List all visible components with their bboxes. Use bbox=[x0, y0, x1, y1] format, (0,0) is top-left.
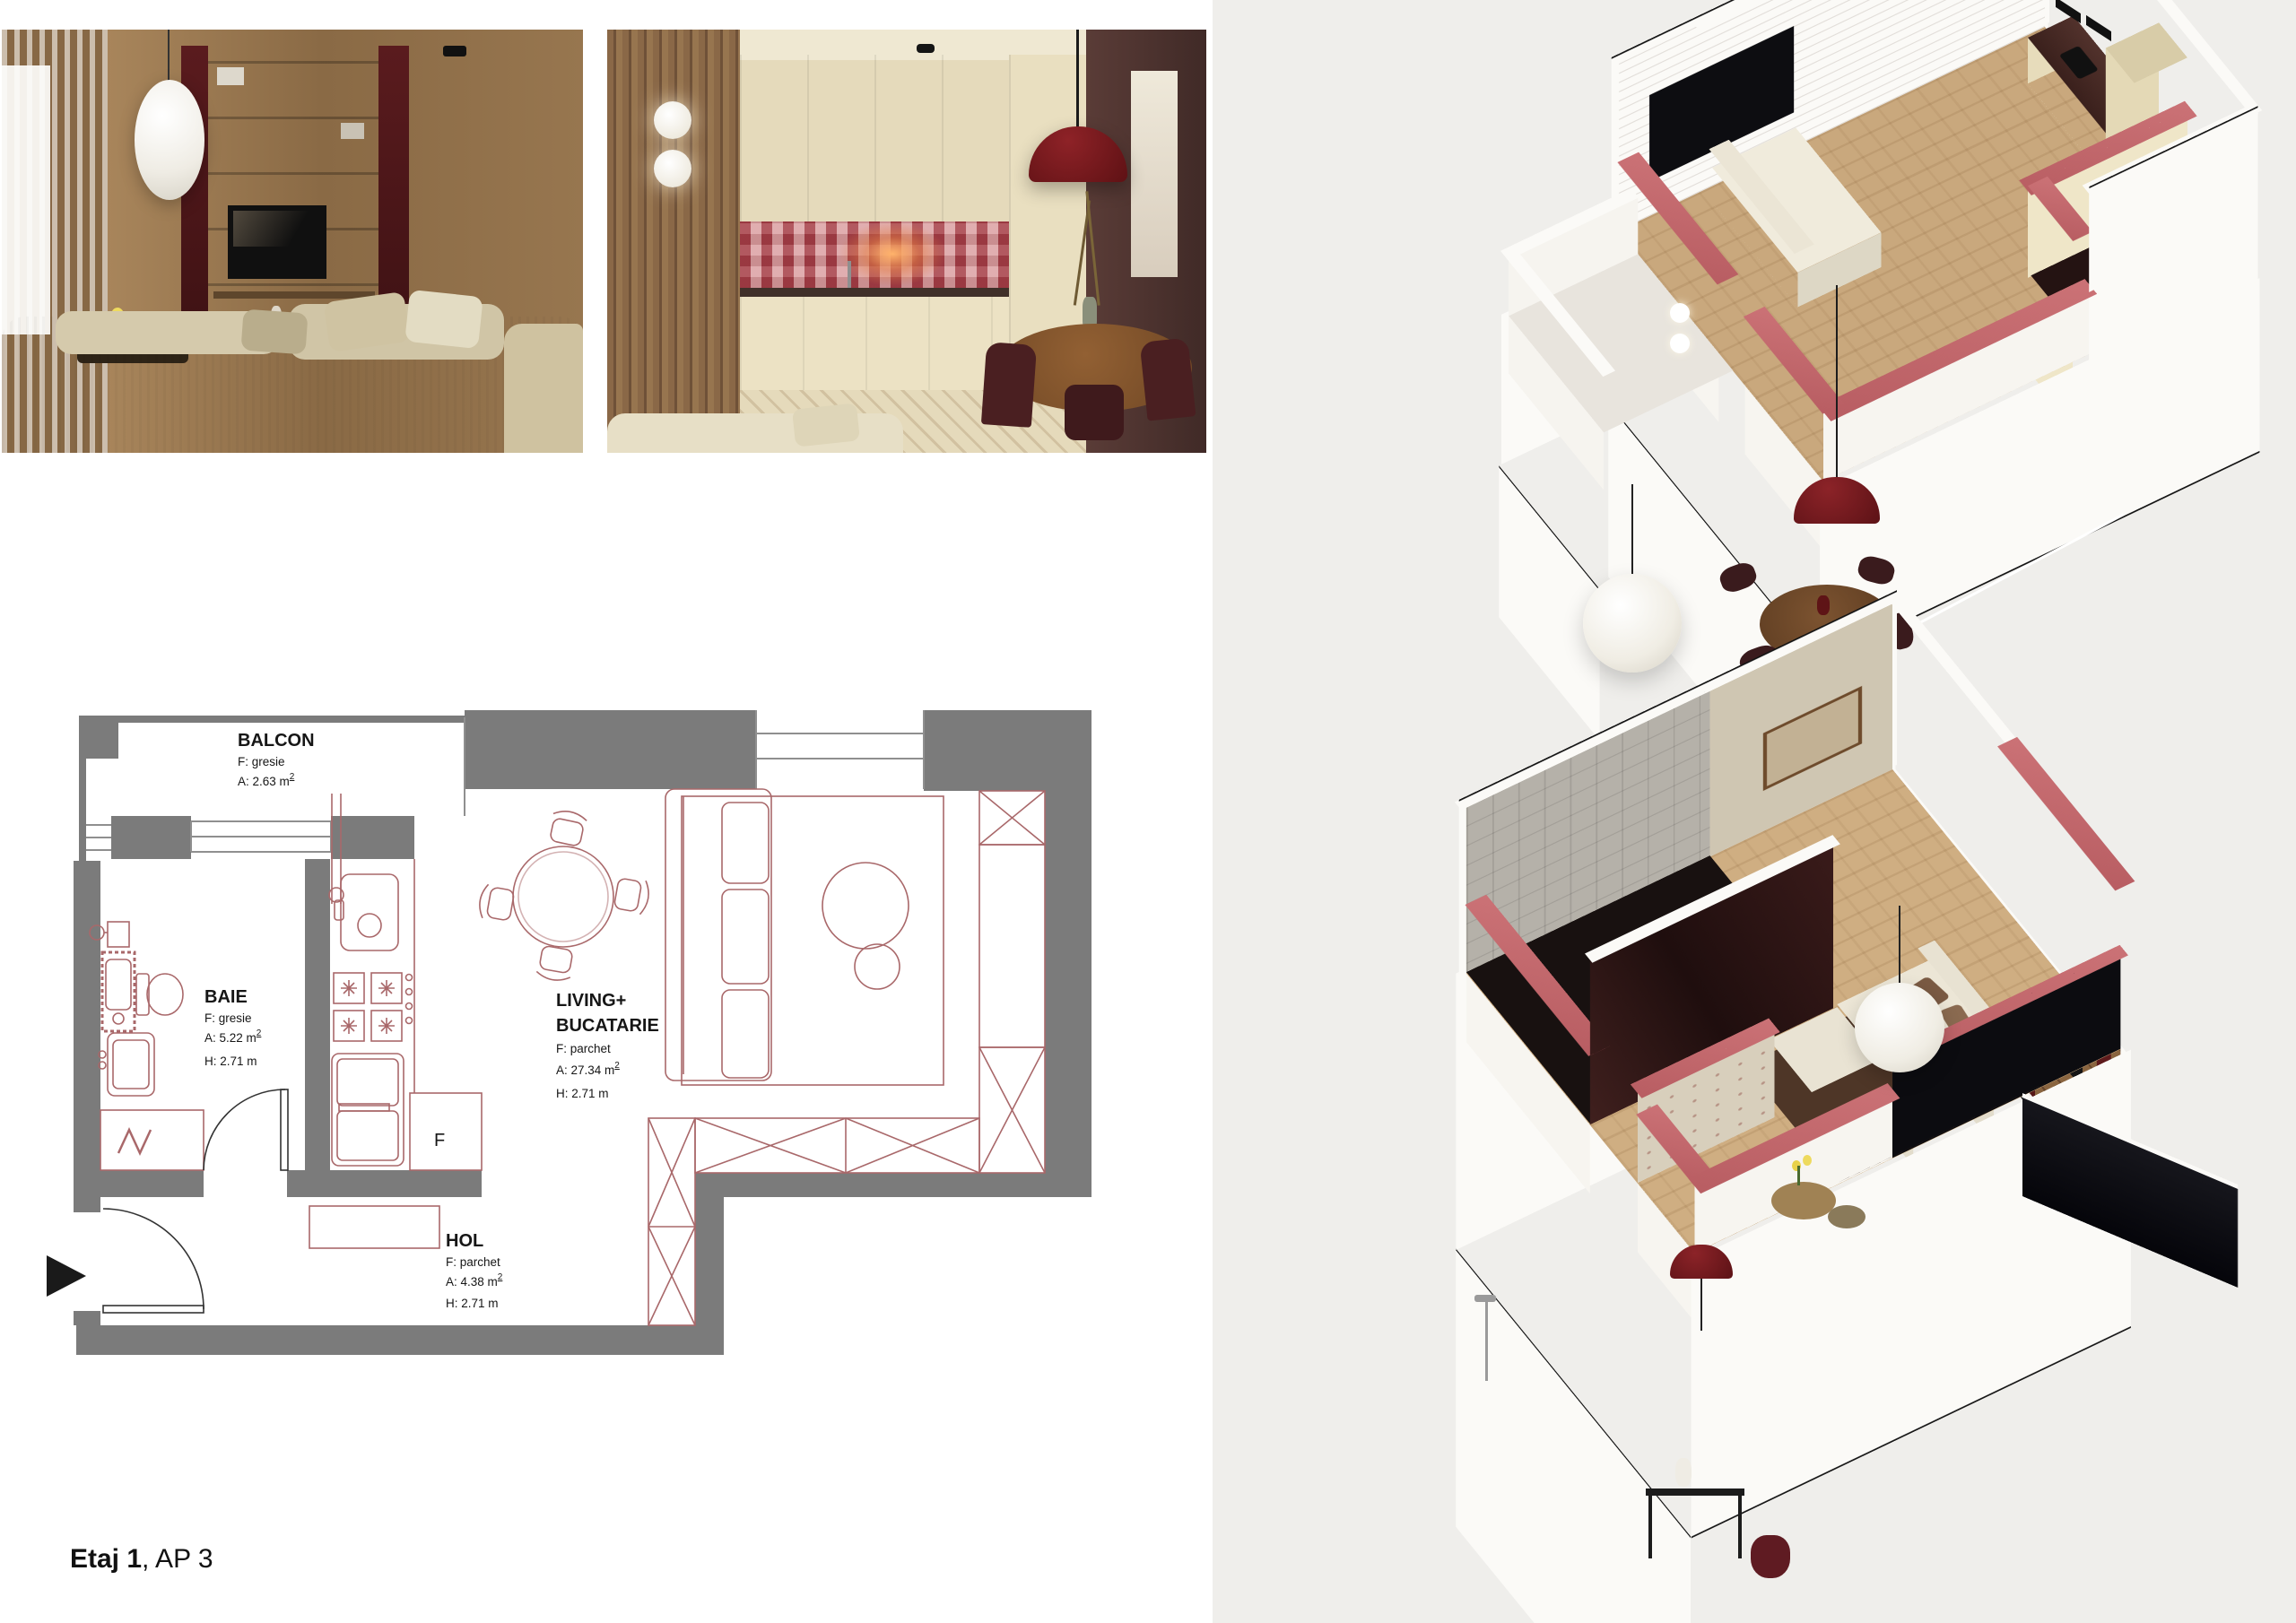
fridge bbox=[410, 1093, 482, 1170]
lamp-stem bbox=[1700, 1273, 1702, 1331]
wall-sconce-icon bbox=[654, 101, 691, 139]
oven bbox=[332, 1054, 404, 1166]
window bbox=[1131, 71, 1178, 277]
fridge-label: F bbox=[434, 1131, 445, 1150]
books bbox=[217, 67, 244, 85]
wall-sconce-icon bbox=[1670, 303, 1690, 323]
sofa-armrest bbox=[504, 324, 583, 453]
base-cabinets bbox=[740, 297, 1009, 390]
books bbox=[341, 123, 364, 139]
stem bbox=[1797, 1166, 1800, 1185]
rug bbox=[682, 796, 944, 1085]
shower-head-icon bbox=[1474, 1295, 1496, 1302]
chair bbox=[535, 945, 575, 983]
apartment-label: , AP 3 bbox=[142, 1544, 213, 1574]
room-area: A: 5.22 m2 bbox=[204, 1028, 262, 1045]
shelf bbox=[213, 291, 375, 299]
table-vase bbox=[1817, 595, 1830, 615]
cooktop bbox=[2059, 46, 2099, 80]
chair bbox=[548, 809, 588, 847]
warm-light-glow bbox=[839, 221, 946, 286]
room-label-hol: HOL bbox=[446, 1231, 483, 1251]
floor-plant bbox=[822, 863, 909, 949]
tv-reflection bbox=[233, 211, 321, 247]
pillow bbox=[240, 309, 308, 355]
pendant-cord bbox=[1836, 285, 1838, 479]
window-light bbox=[2, 65, 50, 334]
white-ball-pendant-lamp bbox=[1583, 574, 1682, 673]
faucet-icon bbox=[848, 261, 851, 288]
room-floor: F: parchet bbox=[446, 1255, 500, 1269]
room-label-living: LIVING+ bbox=[556, 991, 626, 1011]
console-table bbox=[309, 1206, 439, 1248]
dining-table bbox=[513, 846, 613, 947]
plan-labels: BALCON F: gresie A: 2.63 m2 BAIE F: gres… bbox=[204, 731, 659, 1310]
room-floor: F: gresie bbox=[204, 1011, 252, 1025]
pendant-cord bbox=[1899, 906, 1900, 988]
kitchen-photo bbox=[607, 30, 1206, 453]
toilet bbox=[136, 974, 183, 1015]
countertop bbox=[740, 288, 1009, 297]
tulip bbox=[1803, 1155, 1812, 1166]
red-niche-right bbox=[378, 46, 409, 329]
room-height: H: 2.71 m bbox=[204, 1055, 257, 1068]
entrance-arrow-icon bbox=[47, 1255, 86, 1297]
white-oval-pendant-lamp bbox=[135, 80, 204, 200]
artwork bbox=[1763, 686, 1862, 791]
chair bbox=[477, 883, 515, 923]
room-label-balcon: BALCON bbox=[238, 731, 315, 751]
room-label-bucatarie: BUCATARIE bbox=[556, 1016, 659, 1036]
bathtub bbox=[102, 952, 135, 1031]
pouf bbox=[855, 944, 900, 989]
room-area: A: 2.63 m2 bbox=[238, 772, 295, 788]
console-table bbox=[1646, 1488, 1744, 1496]
chair bbox=[613, 876, 651, 916]
pillow bbox=[792, 403, 860, 447]
shower-pipe-icon bbox=[1485, 1302, 1488, 1381]
wall-sconce-icon bbox=[1670, 334, 1690, 353]
pendant-cord bbox=[168, 30, 170, 85]
room-area: A: 27.34 m2 bbox=[556, 1061, 620, 1077]
white-ball-pendant-lamp bbox=[1855, 983, 1944, 1072]
pendant-cord bbox=[1631, 484, 1633, 576]
ceiling-spotlight-icon bbox=[917, 44, 935, 53]
dining-chair bbox=[1140, 337, 1196, 421]
coffee-table bbox=[1828, 1205, 1865, 1228]
plan-doors bbox=[103, 1089, 288, 1313]
room-floor: F: parchet bbox=[556, 1042, 611, 1055]
room-height: H: 2.71 m bbox=[556, 1087, 609, 1100]
red-stool bbox=[1751, 1535, 1790, 1578]
ceiling-spotlight-icon bbox=[443, 46, 466, 56]
coffee-table bbox=[1771, 1182, 1836, 1219]
wood-slat-wall bbox=[607, 30, 740, 453]
vase bbox=[1675, 1458, 1692, 1487]
kitchen-sink bbox=[335, 874, 398, 950]
wall-sconce-icon bbox=[654, 150, 691, 187]
floor-plan: BALCON F: gresie A: 2.63 m2 BAIE F: gres… bbox=[27, 690, 1175, 1417]
pillow bbox=[404, 290, 483, 349]
upper-cabinets bbox=[740, 55, 1009, 221]
room-label-baie: BAIE bbox=[204, 987, 248, 1007]
room-floor: F: gresie bbox=[238, 755, 285, 768]
presentation-board: BALCON F: gresie A: 2.63 m2 BAIE F: gres… bbox=[0, 0, 2296, 1623]
pendant-cord bbox=[1076, 30, 1079, 130]
living-room-photo bbox=[2, 30, 583, 453]
room-area: A: 4.38 m2 bbox=[446, 1272, 503, 1289]
dining-chair bbox=[1065, 385, 1124, 440]
bath-sink bbox=[99, 1033, 154, 1096]
dining-chair bbox=[981, 342, 1037, 428]
board-caption: Etaj 1, AP 3 bbox=[70, 1544, 213, 1575]
console-leg bbox=[1738, 1496, 1742, 1558]
room-height: H: 2.71 m bbox=[446, 1297, 499, 1310]
washing-machine bbox=[100, 1110, 204, 1170]
stove-icon bbox=[334, 973, 413, 1041]
console-leg bbox=[1648, 1496, 1652, 1558]
floor-label: Etaj 1 bbox=[70, 1544, 142, 1574]
